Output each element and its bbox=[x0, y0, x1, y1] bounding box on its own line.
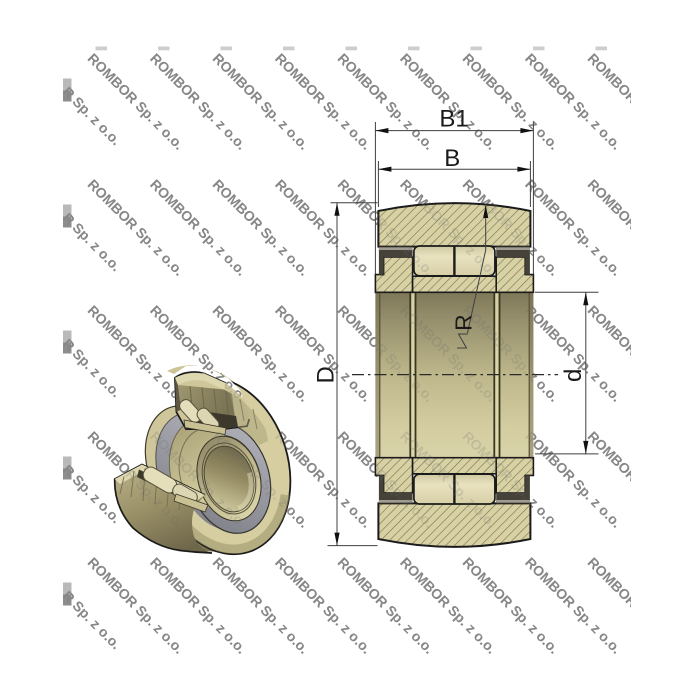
svg-text:R Sp. z o.o.: R Sp. z o.o. bbox=[60, 588, 125, 653]
svg-text:R Sp. z o.o.: R Sp. z o.o. bbox=[60, 84, 125, 149]
svg-text:R Sp. z o.o.: R Sp. z o.o. bbox=[60, 462, 125, 527]
svg-text:R Sp. z o.o.: R Sp. z o.o. bbox=[60, 210, 125, 275]
svg-text:B: B bbox=[444, 145, 460, 172]
svg-text:R Sp. z o.o.: R Sp. z o.o. bbox=[60, 336, 125, 401]
